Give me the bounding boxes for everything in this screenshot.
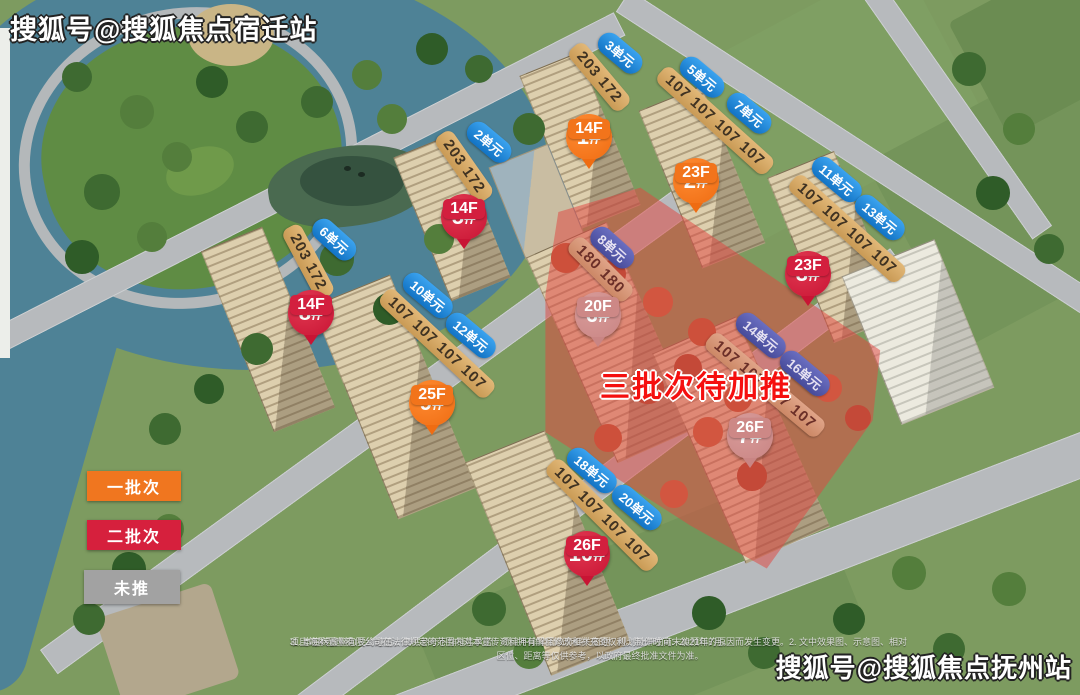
floor-count: 14F bbox=[568, 119, 610, 139]
floor-count: 23F bbox=[675, 163, 717, 183]
legend-item-batch1: 一批次 bbox=[87, 471, 181, 501]
legend-item-batch2: 二批次 bbox=[87, 520, 181, 550]
watermark-bottom-right: 搜狐号@搜狐焦点抚州站 bbox=[776, 648, 1072, 685]
floor-count: 20F bbox=[577, 297, 619, 317]
floor-count: 26F bbox=[729, 418, 771, 438]
image-edge bbox=[0, 28, 10, 358]
plaza-pond bbox=[300, 156, 404, 206]
third-batch-label: 三批次待加推 bbox=[600, 362, 792, 406]
floor-count: 26F bbox=[566, 536, 608, 556]
watermark-top-left: 搜狐号@搜狐焦点宿迁站 bbox=[10, 8, 317, 47]
swan-silhouette bbox=[344, 166, 351, 171]
disclaimer-line2: 3. 上海××置业有限公司在法律规定的范围内对本宣传资料拥有解释修改和补充的权利… bbox=[290, 636, 732, 650]
floor-count: 14F bbox=[443, 199, 485, 219]
swan-silhouette bbox=[358, 172, 365, 177]
floor-count: 25F bbox=[411, 385, 453, 405]
floor-count: 23F bbox=[787, 256, 829, 276]
floor-count: 14F bbox=[290, 295, 332, 315]
legend-item-not-launched: 未推 bbox=[84, 570, 180, 604]
site-plan-rendering: 3单元 203 172 5单元 7单元 107 107 107 107 11单元… bbox=[0, 0, 1080, 695]
